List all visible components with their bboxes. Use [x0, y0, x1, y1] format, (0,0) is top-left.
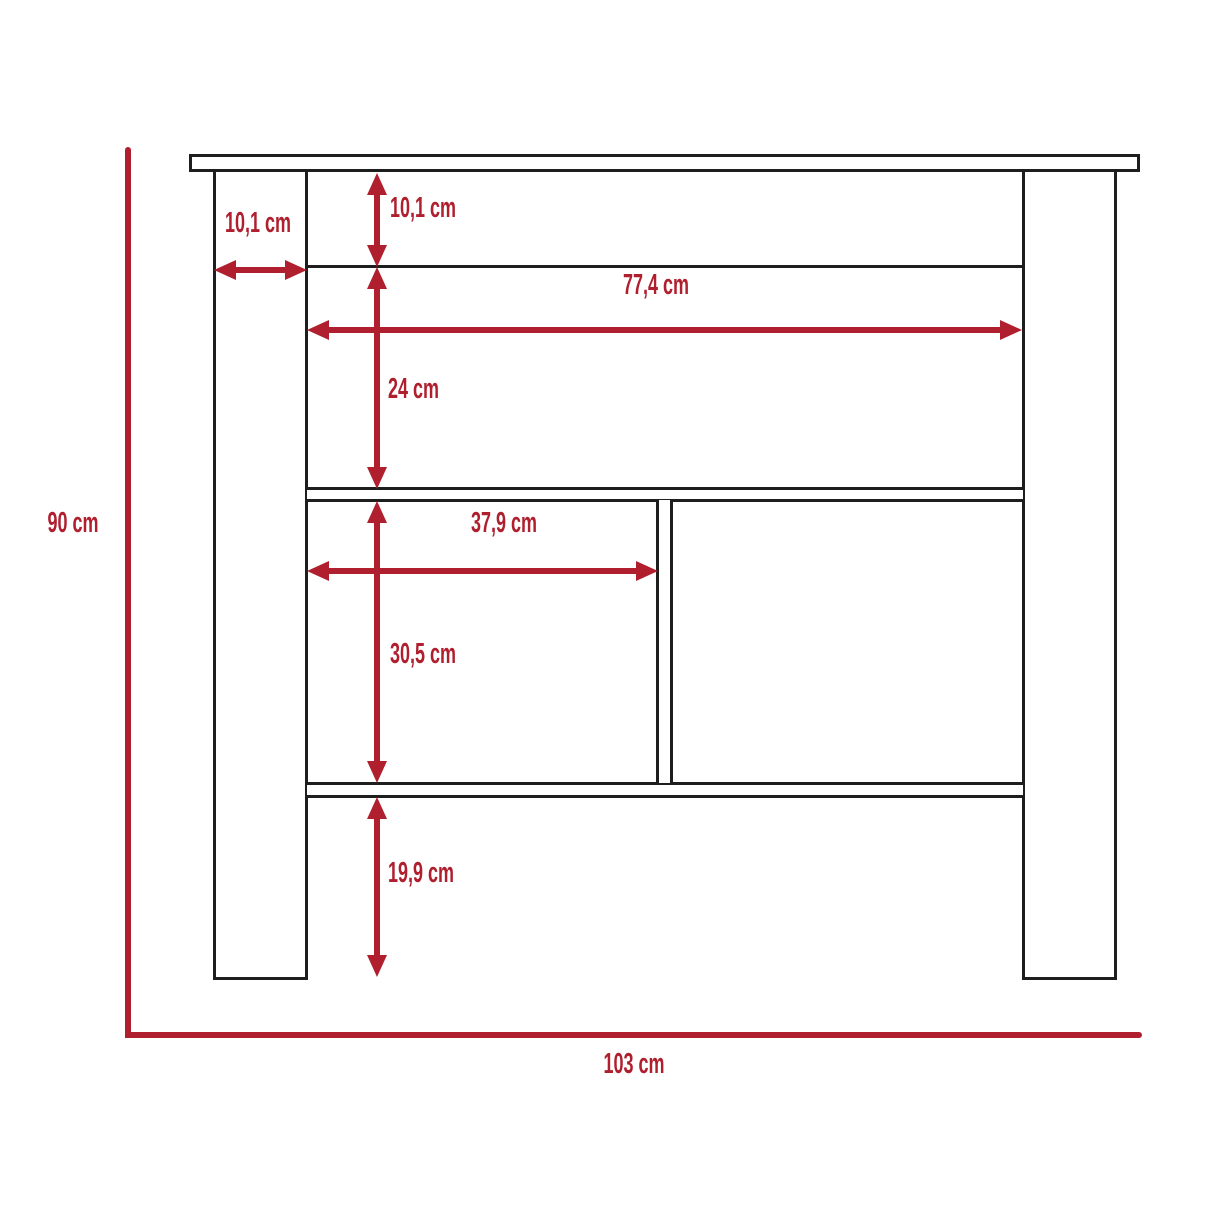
- arrowhead-left-icon: [307, 561, 329, 581]
- height-dimension-line: [125, 147, 131, 1038]
- arrowhead-right-icon: [1000, 320, 1022, 340]
- inner-width-arrow: [323, 327, 1006, 333]
- top-rail-height-label: 10,1 cm: [390, 192, 456, 224]
- arrowhead-up-icon: [367, 797, 387, 819]
- arrowhead-up-icon: [367, 501, 387, 523]
- right-leg: [1022, 169, 1117, 980]
- center-divider: [656, 500, 673, 783]
- arrowhead-left-icon: [307, 320, 329, 340]
- arrowhead-down-icon: [367, 955, 387, 977]
- left-cubby-width-label: 37,9 cm: [471, 507, 537, 539]
- arrowhead-right-icon: [636, 561, 658, 581]
- bottom-clearance-arrow: [374, 813, 380, 961]
- arrowhead-down-icon: [367, 245, 387, 267]
- arrowhead-up-icon: [367, 267, 387, 289]
- top-rail-line: [307, 265, 1023, 268]
- cubby-height-label: 30,5 cm: [390, 638, 456, 670]
- leg-width-arrow: [230, 267, 291, 273]
- arrowhead-down-icon: [367, 467, 387, 489]
- leg-width-label: 10,1 cm: [225, 207, 291, 239]
- cubby-height-arrow: [374, 517, 380, 767]
- width-dimension-line: [125, 1032, 1142, 1038]
- left-cubby-width-arrow: [323, 568, 642, 574]
- inner-width-label: 77,4 cm: [623, 269, 689, 301]
- overall-height-label: 90 cm: [48, 507, 99, 539]
- arrowhead-left-icon: [214, 260, 236, 280]
- bottom-shelf: [307, 782, 1023, 798]
- arrowhead-up-icon: [367, 173, 387, 195]
- bottom-clearance-label: 19,9 cm: [388, 857, 454, 889]
- left-leg: [213, 169, 308, 980]
- top-rail-height-arrow: [374, 189, 380, 251]
- dimension-diagram: 10,1 cm 10,1 cm 77,4 cm 24 cm 37,9 cm 30…: [0, 0, 1214, 1214]
- countertop: [189, 154, 1140, 172]
- arrowhead-down-icon: [367, 761, 387, 783]
- upper-shelf-height-label: 24 cm: [388, 373, 439, 405]
- upper-shelf-height-arrow: [374, 283, 380, 473]
- overall-width-label: 103 cm: [604, 1048, 665, 1080]
- arrowhead-right-icon: [285, 260, 307, 280]
